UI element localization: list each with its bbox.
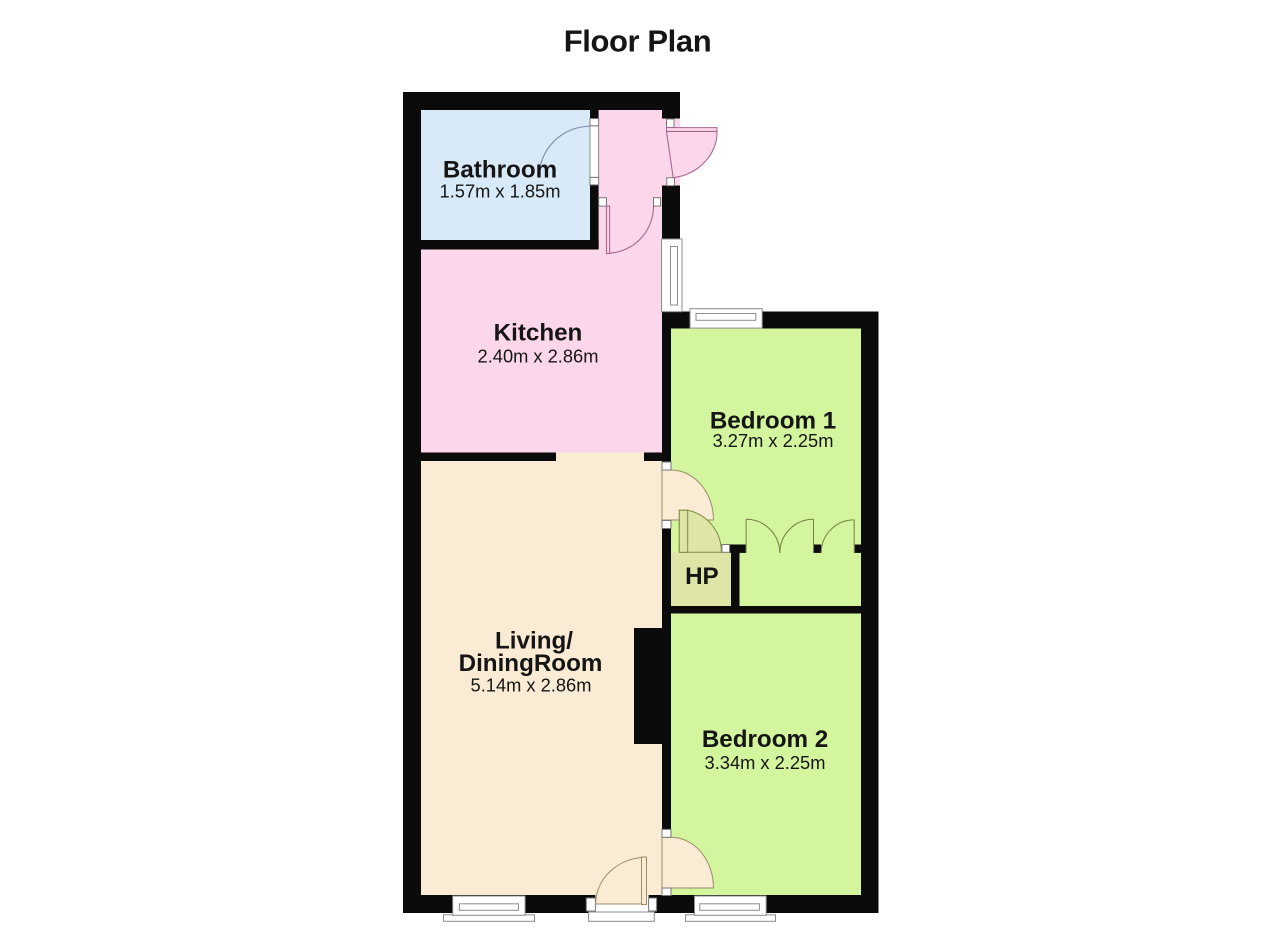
svg-text:HP: HP: [685, 563, 719, 590]
svg-text:3.34m x 2.25m: 3.34m x 2.25m: [705, 752, 826, 773]
svg-text:Bedroom 2: Bedroom 2: [702, 726, 828, 753]
svg-text:1.57m x 1.85m: 1.57m x 1.85m: [440, 180, 561, 201]
svg-text:Floor Plan: Floor Plan: [564, 23, 712, 58]
svg-text:DiningRoom: DiningRoom: [459, 650, 603, 677]
svg-text:2.40m x 2.86m: 2.40m x 2.86m: [478, 345, 599, 366]
svg-text:5.14m x 2.86m: 5.14m x 2.86m: [471, 675, 592, 696]
svg-text:Kitchen: Kitchen: [494, 319, 583, 346]
svg-text:3.27m x 2.25m: 3.27m x 2.25m: [713, 430, 834, 451]
svg-text:Bathroom: Bathroom: [443, 156, 557, 183]
